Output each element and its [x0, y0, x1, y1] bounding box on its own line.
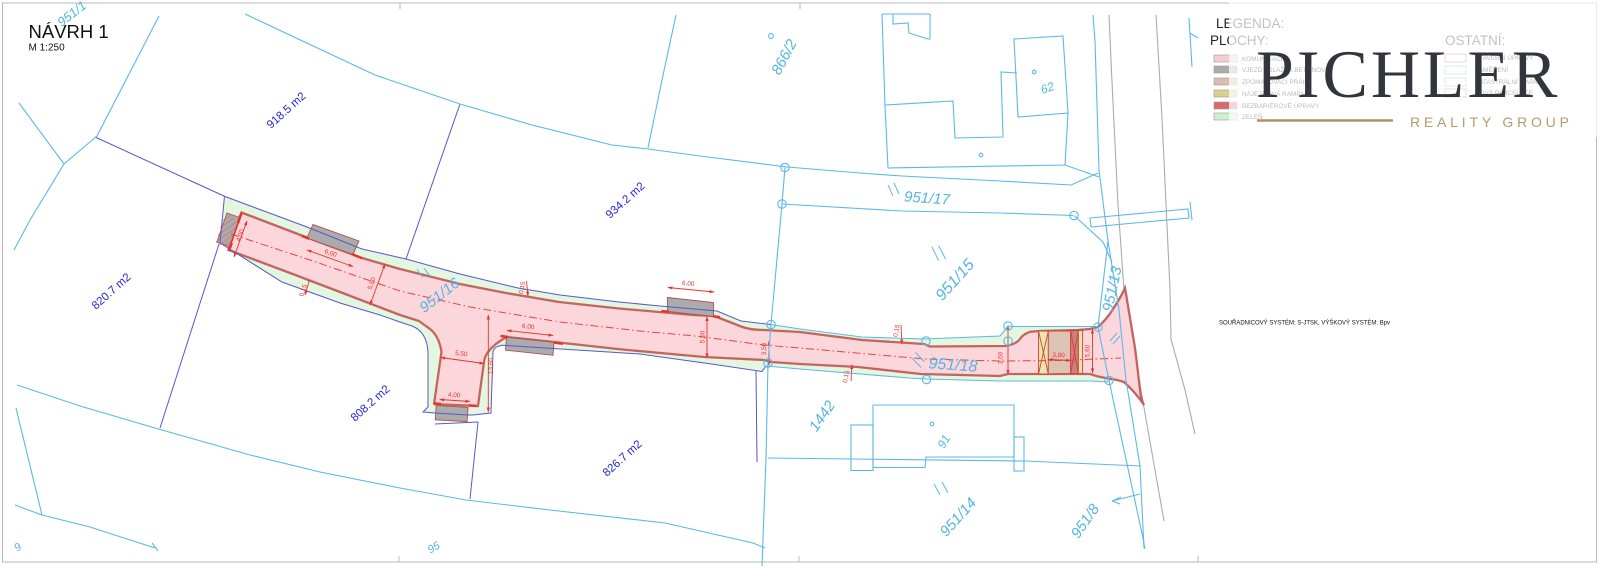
- svg-text:13,60: 13,60: [488, 358, 495, 374]
- svg-text:PICHLER: PICHLER: [1256, 36, 1560, 112]
- svg-text:3,00: 3,00: [1052, 352, 1065, 359]
- svg-text:6,00: 6,00: [682, 280, 696, 288]
- svg-text:5,50: 5,50: [700, 330, 707, 343]
- svg-text:5,60: 5,60: [1084, 344, 1091, 357]
- svg-text:951/18: 951/18: [928, 355, 978, 375]
- svg-text:951/17: 951/17: [903, 188, 951, 208]
- svg-text:NÁVRH 1: NÁVRH 1: [29, 21, 109, 42]
- svg-text:M 1:250: M 1:250: [29, 43, 66, 54]
- svg-text:6,00: 6,00: [522, 323, 536, 331]
- svg-text:REALITY GROUP: REALITY GROUP: [1410, 114, 1573, 130]
- svg-text:SOUŘADNICOVÝ SYSTÉM: S-JTSK, V: SOUŘADNICOVÝ SYSTÉM: S-JTSK, VÝŠKOVÝ SYS…: [1219, 319, 1390, 327]
- svg-text:4,00: 4,00: [448, 392, 461, 400]
- svg-text:3,50: 3,50: [761, 342, 768, 355]
- svg-text:3,60: 3,60: [998, 351, 1005, 364]
